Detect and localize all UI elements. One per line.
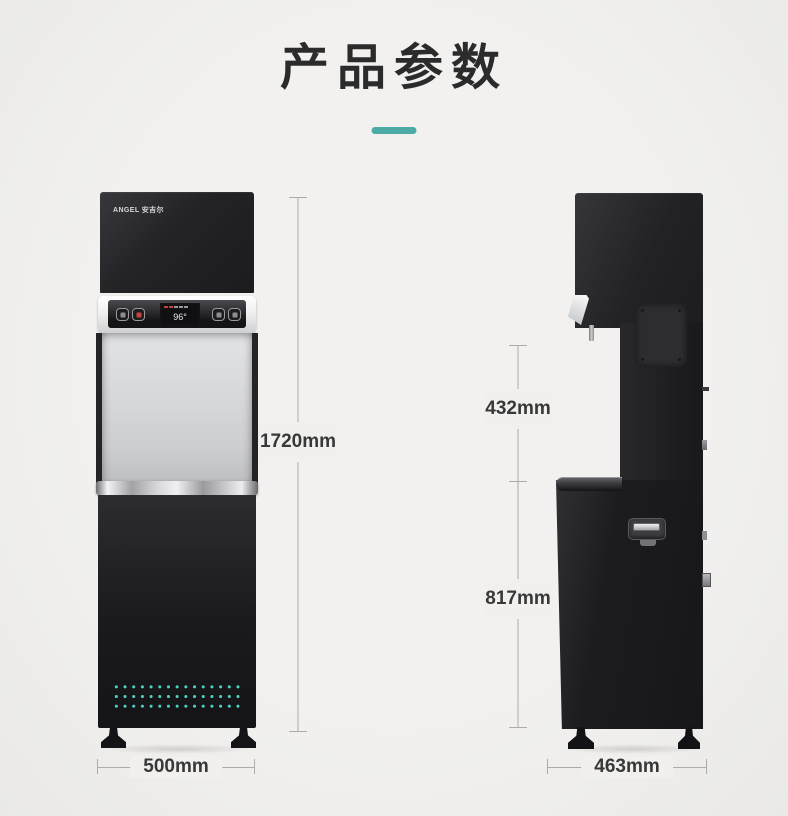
screw-icon: [678, 358, 681, 361]
side-faucet: [589, 325, 594, 341]
hot-water-button-icon: [132, 308, 145, 321]
dimension-tick: [289, 731, 307, 732]
handle-bar: [633, 523, 660, 531]
dimension-front-width: 500mm: [97, 759, 255, 775]
temperature-readout: 96°: [160, 312, 200, 322]
side-lower-cabinet: [556, 480, 703, 729]
dimension-line: [298, 197, 299, 732]
side-view-illustration: [556, 193, 706, 749]
temperature-display: 96°: [160, 303, 200, 326]
rear-fitting: [702, 440, 707, 450]
rear-fitting: [702, 531, 707, 540]
screw-icon: [641, 309, 644, 312]
lower-cabinet: [98, 495, 256, 728]
control-button-icon: [116, 308, 129, 321]
body-edge-right: [252, 333, 258, 483]
dimension-side-lower-height: 817mm: [508, 482, 528, 728]
handle-tab: [640, 540, 656, 546]
dimension-label-width: 500mm: [130, 756, 222, 778]
product-parameters-page: 产品参数 ANGEL 安吉尔 96°: [0, 0, 788, 816]
screw-icon: [678, 309, 681, 312]
ventilation-dots: [112, 682, 242, 711]
drip-tray: [96, 481, 258, 495]
control-panel-inset: 96°: [108, 300, 246, 328]
dimension-tick: [254, 759, 255, 774]
dimension-front-height: 1720mm: [288, 197, 308, 732]
screw-icon: [641, 358, 644, 361]
control-button-icon: [228, 308, 241, 321]
dimension-label-depth: 463mm: [581, 756, 673, 778]
brand-logo: ANGEL 安吉尔: [113, 205, 164, 215]
rear-pipe-fitting: [702, 573, 711, 587]
dimension-tick: [706, 759, 707, 774]
control-panel: 96°: [98, 296, 256, 333]
control-button-icon: [212, 308, 225, 321]
page-title: 产品参数: [0, 28, 788, 99]
ground-shadow: [560, 744, 704, 754]
rear-fitting: [702, 387, 709, 391]
dispensing-recess: [102, 333, 252, 481]
display-status-marks: [164, 306, 188, 308]
front-view-illustration: ANGEL 安吉尔 96°: [96, 192, 258, 748]
door-handle: [628, 518, 666, 540]
dimension-side-depth: 463mm: [547, 759, 707, 775]
side-drip-tray-edge: [556, 477, 622, 491]
title-underline-accent: [372, 127, 417, 134]
front-hood-panel: ANGEL 安吉尔: [100, 192, 254, 293]
dimension-tick: [509, 727, 527, 728]
ground-shadow: [100, 744, 256, 754]
dimension-label-upper: 432mm: [484, 389, 552, 429]
dimension-side-upper-height: 432mm: [508, 345, 528, 482]
dimension-label-lower: 817mm: [484, 579, 552, 619]
dimension-label-height: 1720mm: [259, 422, 337, 462]
access-panel: [635, 303, 687, 367]
